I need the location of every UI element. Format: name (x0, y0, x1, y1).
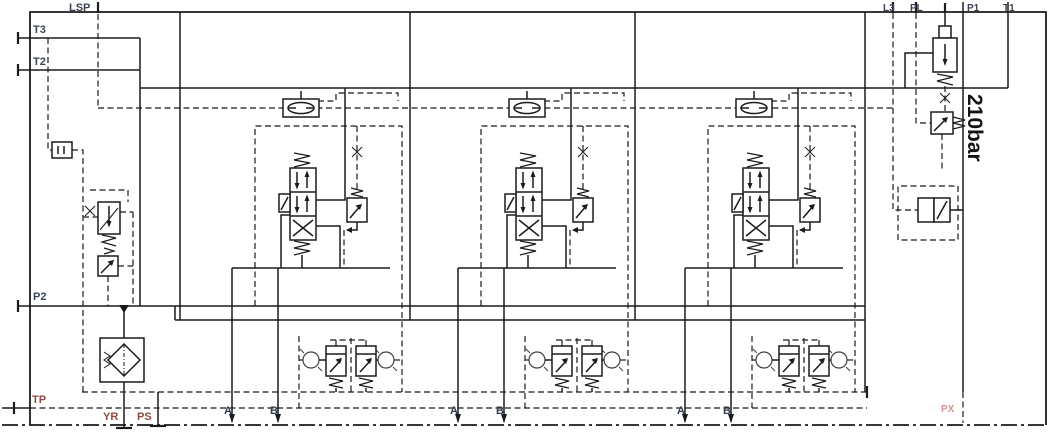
port-label-p2: P2 (33, 292, 46, 303)
work-section-3 (682, 88, 855, 423)
pressure-rating-label: 210bar (963, 94, 986, 162)
port-label-lsp: LSP (69, 3, 90, 14)
work-section-2 (455, 88, 628, 423)
port-label-t3: T3 (33, 25, 46, 36)
port-label-t2: T2 (33, 57, 46, 68)
work-port-label-a3: A (677, 406, 685, 417)
work-port-label-b3: B (723, 406, 731, 417)
work-port-label-b2: B (496, 406, 504, 417)
port-label-pl: PL (910, 4, 923, 14)
port-label-px: PX (941, 405, 954, 415)
port-label-p1: P1 (967, 4, 979, 14)
work-section-1 (229, 88, 402, 423)
port-label-ps: PS (137, 412, 152, 423)
work-port-label-a1: A (224, 406, 232, 417)
work-port-label-b1: B (270, 406, 278, 417)
inlet-relief-group (893, 2, 1008, 423)
hydraulic-schematic-canvas: 210bar LSP T3 T2 P2 TP YR PS L3 PL P1 T1… (0, 0, 1063, 444)
work-port-label-a2: A (450, 406, 458, 417)
port-label-yr: YR (103, 412, 118, 423)
filter-group (100, 306, 166, 428)
port-label-l3: L3 (883, 4, 895, 14)
port-label-t1: T1 (1003, 4, 1015, 14)
port-label-tp: TP (32, 395, 46, 406)
schematic-linework: 210bar (0, 0, 1063, 444)
